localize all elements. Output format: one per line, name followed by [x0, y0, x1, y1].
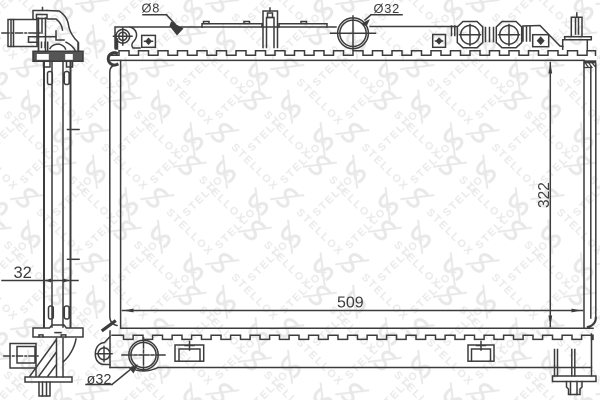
svg-text:Ø8: Ø8: [142, 1, 161, 16]
svg-text:322: 322: [536, 182, 553, 208]
svg-text:Ø32: Ø32: [374, 1, 401, 16]
svg-text:32: 32: [14, 264, 32, 282]
svg-text:ø32: ø32: [87, 372, 112, 388]
svg-text:509: 509: [337, 295, 364, 312]
